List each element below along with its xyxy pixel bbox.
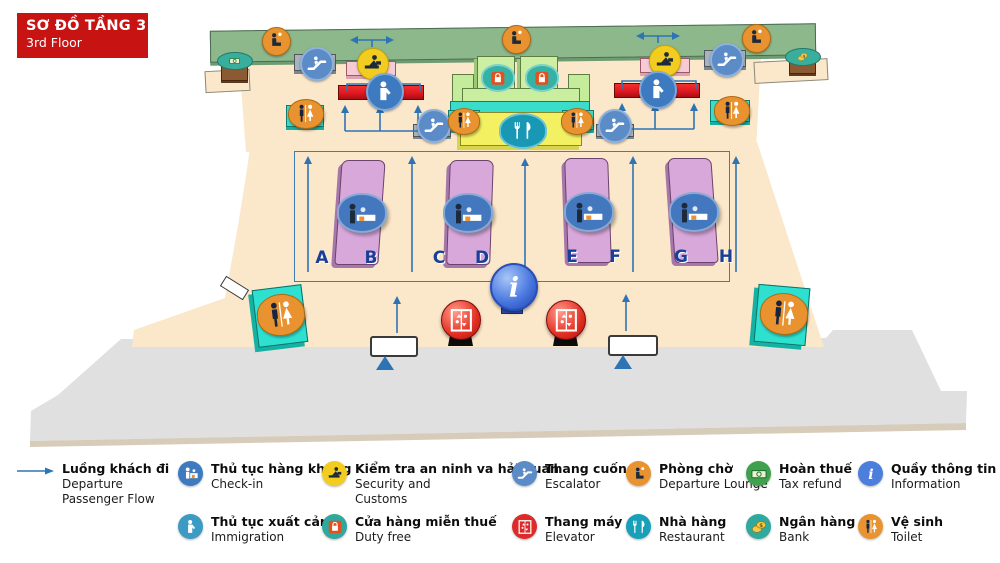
duty-free-icon (525, 64, 559, 92)
bank-icon: $ (746, 514, 771, 539)
legend-label-en: Duty free (355, 530, 473, 545)
duty-free-icon (322, 514, 347, 539)
toilet-icon (288, 99, 324, 129)
legend-label-vi: Ngân hàng (779, 514, 855, 530)
information-icon: i (858, 461, 883, 486)
departure-lounge-icon (626, 461, 651, 486)
counter-letter-e: E (561, 247, 583, 267)
elevator-icon (441, 300, 481, 340)
departure-lounge-icon (502, 25, 531, 54)
escalator-icon (300, 47, 334, 81)
legend-label-en: Toilet (891, 530, 943, 545)
escalator-icon (598, 109, 632, 143)
escalator-icon (417, 109, 451, 143)
toilet-icon (714, 96, 750, 126)
legend-label-vi: Thang máy (545, 514, 622, 530)
legend-label-en: Bank (779, 530, 855, 545)
legend-label-vi: Cửa hàng miễn thuế (355, 514, 497, 530)
toilet-icon (448, 108, 480, 135)
immigration-icon (639, 71, 677, 109)
counter-letter-g: G (670, 247, 692, 267)
counter-letter-d: D (471, 248, 493, 268)
tax-refund-icon (217, 52, 253, 70)
counter-letter-b: B (360, 248, 382, 268)
legend-item-duty-free: Cửa hàng miễn thuếDuty free (322, 514, 497, 545)
airport-floor-plan-page: i$ A B C D E F G H SƠ ĐỒ TẦNG 3 3rd Floo… (0, 0, 1000, 563)
svg-text:$: $ (803, 54, 806, 58)
legend-item-restaurant: Nhà hàngRestaurant (626, 514, 726, 545)
check-in-icon (178, 461, 203, 486)
legend-label-en: Restaurant (659, 530, 726, 545)
elevator-icon (546, 300, 586, 340)
counter-letter-f: F (604, 247, 626, 267)
security-icon (322, 461, 347, 486)
legend-label-en: Information (891, 477, 996, 492)
legend-label-vi: Luồng khách đi (62, 461, 180, 477)
check-in-map-icon (564, 192, 614, 232)
departure-lounge-icon (742, 24, 771, 53)
escalator-icon (512, 461, 537, 486)
toilet-icon (255, 291, 308, 339)
legend-label-vi: Vệ sinh (891, 514, 943, 530)
toilet-icon (858, 514, 883, 539)
legend-item-escalator: Thang cuốnEscalator (512, 461, 627, 492)
departure-lounge-icon (262, 27, 291, 56)
check-in-map-icon (443, 193, 493, 233)
legend-label-vi: Quầy thông tin (891, 461, 996, 477)
legend-label-en: Immigration (211, 530, 329, 545)
counter-letter-h: H (715, 247, 737, 267)
legend-label-vi: Thủ tục xuất cảnh (211, 514, 338, 530)
legend-label-en: Escalator (545, 477, 627, 492)
duty-free-icon (481, 64, 515, 92)
check-in-map-icon (669, 192, 719, 232)
legend-label-en: Departure Passenger Flow (62, 477, 180, 507)
svg-text:i: i (868, 467, 873, 483)
legend-item-information: iQuầy thông tinInformation (858, 461, 996, 492)
legend-label-vi: Hoàn thuế (779, 461, 852, 477)
check-in-map-icon (337, 193, 387, 233)
legend-item-tax-refund: Hoàn thuếTax refund (746, 461, 852, 492)
immigration-icon (366, 73, 404, 111)
information-icon: i (490, 263, 538, 311)
restaurant-icon (499, 113, 547, 149)
legend-item-immigration: Thủ tục xuất cảnhImmigration (178, 514, 338, 545)
toilet-icon (758, 291, 809, 337)
bank-icon: $ (785, 48, 821, 66)
legend-label-en: Elevator (545, 530, 622, 545)
legend-item-toilet: Vệ sinhToilet (858, 514, 943, 545)
legend-item-bank: $Ngân hàngBank (746, 514, 855, 545)
counter-letter-a: A (311, 248, 333, 268)
flow-arrow-icon (16, 465, 54, 477)
legend-label-en: Security and Customs (355, 477, 473, 507)
elevator-icon (512, 514, 537, 539)
legend-item-flow-arrow: Luồng khách điDeparture Passenger Flow (16, 461, 180, 507)
legend-item-elevator: Thang máyElevator (512, 514, 622, 545)
restaurant-icon (626, 514, 651, 539)
svg-text:i: i (509, 272, 519, 303)
svg-text:$: $ (759, 523, 763, 529)
immigration-icon (178, 514, 203, 539)
escalator-icon (710, 43, 744, 77)
toilet-icon (561, 108, 593, 135)
legend-label-en: Tax refund (779, 477, 852, 492)
legend-label-en: Check-in (211, 477, 329, 492)
counter-letter-c: C (428, 248, 450, 268)
legend-label-vi: Nhà hàng (659, 514, 726, 530)
floor-title-vi: SƠ ĐỒ TẦNG 3 (26, 18, 139, 34)
floor-title-box: SƠ ĐỒ TẦNG 3 3rd Floor (17, 13, 148, 58)
legend-label-vi: Thang cuốn (545, 461, 627, 477)
tax-refund-icon (746, 461, 771, 486)
floor-title-en: 3rd Floor (26, 35, 139, 50)
